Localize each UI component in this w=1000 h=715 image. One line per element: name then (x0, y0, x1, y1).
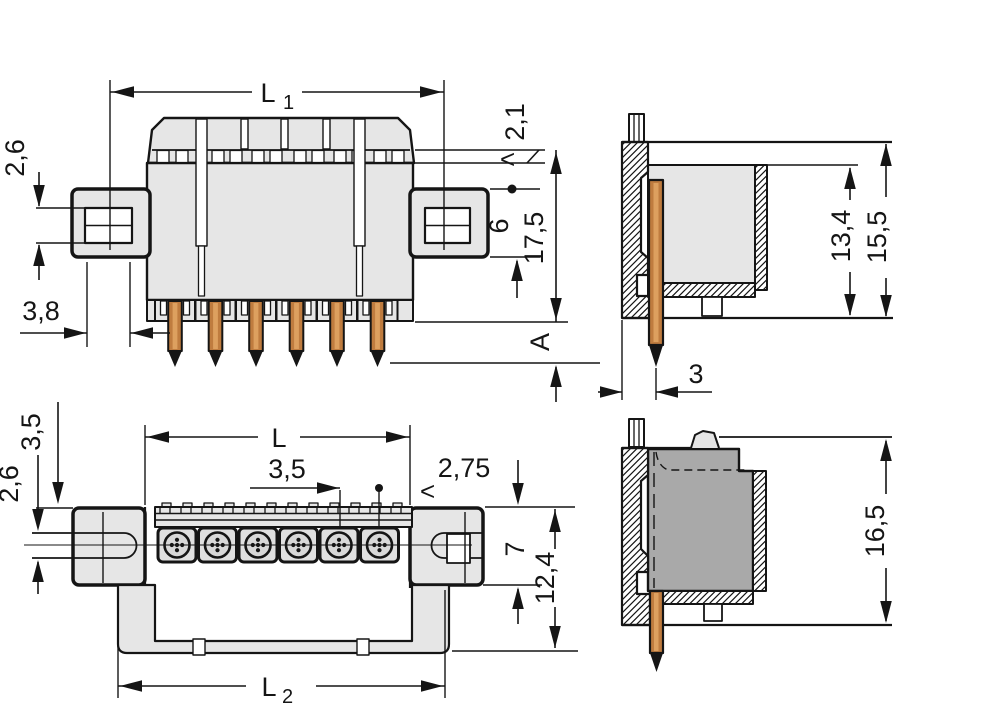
dim-front-overall-height: 17,5 (519, 150, 562, 322)
dim-front-pin-length-label: A (525, 333, 555, 351)
dim-front-bottom-width-label: 3,8 (22, 296, 60, 326)
mated-side-pin (650, 591, 663, 672)
dim-l1-sub: 1 (283, 92, 294, 114)
left-flange (72, 189, 150, 257)
dim-side-inner-height-label: 13,4 (826, 210, 856, 263)
dim-front-left-height-label: 2,6 (0, 139, 30, 177)
pin-stub-top (629, 114, 644, 142)
solder-pins (155, 300, 398, 367)
dim-side-outer-height: 15,5 (862, 144, 892, 317)
less-than-mark-front: < (500, 144, 515, 174)
right-wall-section (755, 165, 767, 290)
dim-plan-right-offset-label: 2,75 (438, 453, 491, 483)
dim-mated-height: 16,5 (860, 439, 892, 623)
front-view: L 1 2,6 3,8 (0, 78, 600, 402)
dim-front-flange-height-label: 6 (484, 218, 514, 233)
dim-plan-left-offset-label: 3,5 (16, 413, 46, 451)
dim-l2-label: L (261, 672, 276, 702)
dim-plan-left-inner-label: 2,6 (0, 465, 24, 503)
dim-front-overall-height-label: 17,5 (519, 212, 549, 265)
dim-plan-left-offset: 3,5 (16, 402, 73, 508)
plan-right-flange (410, 508, 483, 585)
dim-front-pin-length: A (525, 333, 562, 402)
dim-mated-height-label: 16,5 (860, 505, 890, 558)
plan-lower-frame (118, 585, 449, 653)
less-than-mark-plan: < (420, 476, 435, 506)
plan-left-flange (32, 508, 145, 585)
connector-body (147, 163, 413, 300)
dim-side-outer-height-label: 15,5 (862, 211, 892, 264)
side-section-view: 13,4 15,5 3 (598, 114, 893, 400)
mated-section-view: 16,5 (622, 419, 892, 672)
plan-teeth-strip (155, 503, 412, 527)
pin-stub-top-2 (629, 419, 644, 447)
technical-drawing: L 1 2,6 3,8 (0, 0, 1000, 715)
dim-front-flange-height: 6 (484, 185, 523, 299)
left-wall-section-2 (622, 448, 650, 625)
bottom-wall-section-2 (650, 591, 753, 604)
dim-front-top-right-label: 2,1 (500, 103, 530, 141)
plan-view: L 3,5 2,75 < 7 (0, 402, 578, 708)
dim-l1-label: L (260, 78, 275, 108)
right-flange (410, 189, 488, 257)
dim-plan-overall-height-label: 12,4 (530, 552, 560, 605)
dim-plan-pitch-label: 3,5 (268, 454, 306, 484)
side-pin (649, 180, 663, 367)
right-wall-section-2 (753, 471, 766, 591)
technical-drawing-page: L 1 2,6 3,8 (0, 0, 1000, 715)
dim-plan-flange-height-label: 7 (500, 541, 530, 556)
dim-plan-left-inner: 2,6 (0, 455, 44, 594)
dim-plan-right-offset: 2,75 < (420, 453, 575, 507)
dim-plan-length-label: L (271, 423, 286, 453)
dim-side-inner-height: 13,4 (826, 167, 856, 316)
dim-side-pin-offset-label: 3 (688, 359, 703, 389)
left-wall-section (622, 142, 650, 318)
dim-l2-sub: 2 (282, 686, 293, 708)
